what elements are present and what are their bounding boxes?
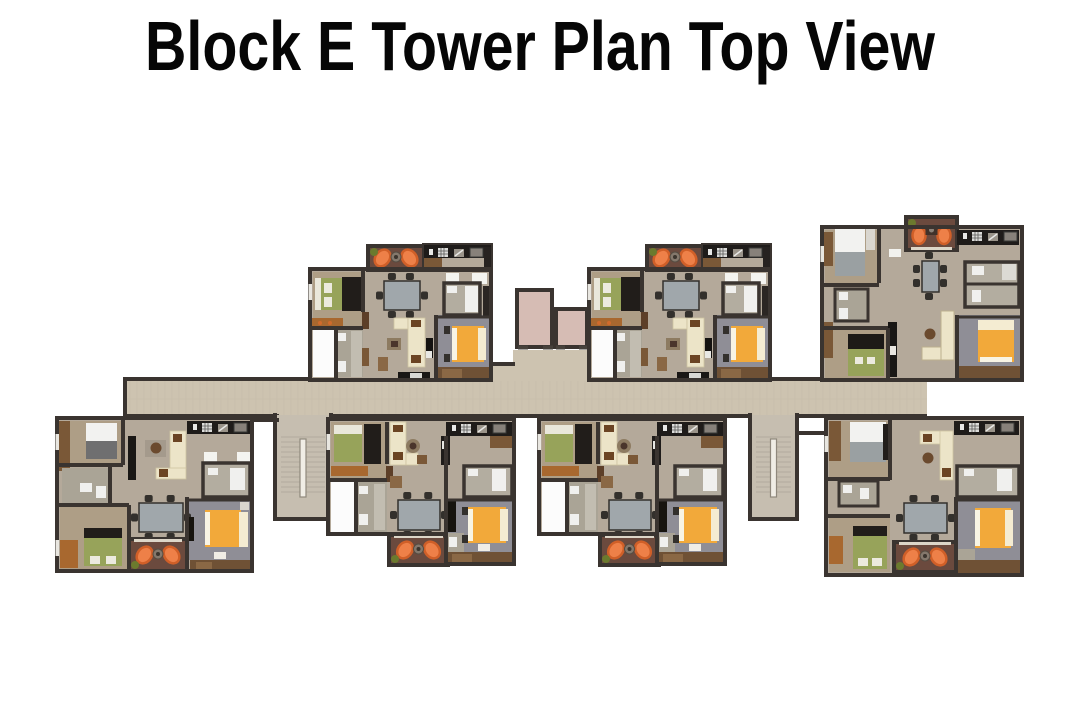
svg-text:Block E Tower Plan Top View: Block E Tower Plan Top View [145,7,935,85]
